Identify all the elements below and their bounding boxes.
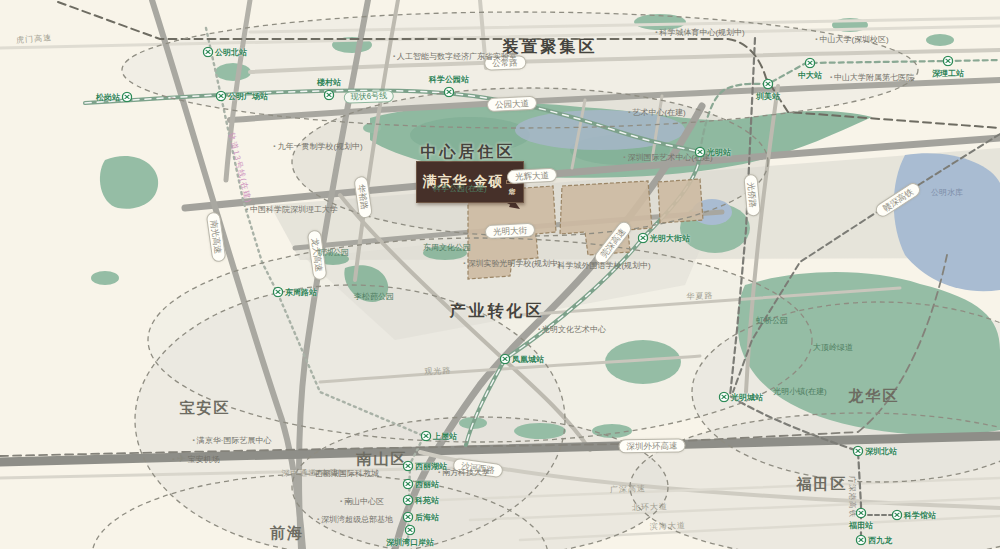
district-label: 南山区: [357, 450, 408, 469]
metro-station-label: 西丽站: [415, 479, 439, 490]
metro-station-icon: [444, 87, 455, 98]
metro-station-label: 光明站: [707, 147, 731, 158]
metro-station-label: 深圳北站: [865, 446, 897, 457]
road-pill: 公园大道: [487, 96, 538, 113]
poi-label: 西丽湖国际科教城: [311, 470, 379, 479]
poi-label: 南山中心区: [340, 498, 384, 507]
location-map: 满京华·金硕 华府 装置聚集区中心居住区产业转化区宝安区南山区龙华区福田区前海公…: [0, 0, 1000, 549]
airport-icon: ✈: [176, 452, 185, 464]
metro-station-label: 光明城站: [731, 392, 763, 403]
road-label: 广深高速: [610, 483, 646, 495]
road-label: 华夏路: [686, 290, 713, 302]
metro-station-label: 圳美站: [756, 91, 780, 102]
metro-station-icon: [403, 479, 414, 490]
poi-label: 九年一贯制学校(规划中): [273, 143, 362, 152]
metro-station-icon: [403, 461, 414, 472]
district-label: 宝安区: [180, 399, 231, 418]
metro-station-label: 科学馆站: [904, 510, 936, 521]
metro-station-label: 深理工站: [932, 68, 964, 79]
metro-station-label: 西丽湖站: [415, 461, 447, 472]
road-pill: 深圳外环高速: [618, 438, 685, 453]
metro-station-icon: [324, 90, 335, 101]
district-label: 前海: [270, 524, 304, 543]
metro-station-label: 松岗站: [96, 92, 120, 103]
road-pill: 光辉大道: [507, 168, 558, 185]
park-label: 虹桥公园: [756, 315, 788, 326]
poi-label: 满京华·国际艺展中心: [193, 437, 272, 446]
poi-label: ✈宝安机场: [172, 452, 219, 465]
metro-station-label: 东周路站: [285, 287, 317, 298]
park-label: 新湖公园: [317, 247, 349, 258]
metro-station-icon: [856, 508, 867, 519]
metro-station-label: 凤凰城站: [512, 354, 544, 365]
metro-station-icon: [403, 495, 414, 506]
zone-label: 产业转化区: [450, 301, 545, 322]
road-label: 滨海大道: [650, 520, 686, 532]
district-label: 龙华区: [849, 387, 900, 406]
poi-label: 光明文化艺术中心: [538, 326, 606, 335]
metro-station-label: 公明北站: [215, 47, 247, 58]
park-label: 李松蓢公园: [354, 291, 394, 302]
metro-station-icon: [943, 56, 954, 67]
metro-station-icon: [853, 446, 864, 457]
metro-station-icon: [856, 535, 867, 546]
poi-label: 深圳湾超级总部基地: [317, 516, 393, 525]
metro-station-label: 深圳湾口岸站: [386, 537, 434, 548]
poi-label: 中山大学(深圳校区): [815, 36, 888, 45]
poi-label: 人工智能与数字经济广东省实验室: [393, 53, 517, 62]
metro-line-badge: 现状6号线: [344, 90, 395, 104]
park-label: 大顶岭绿道: [813, 342, 853, 353]
park-label: 光明小镇(在建): [773, 386, 826, 397]
metro-station-icon: [719, 392, 730, 403]
poi-label: 科学城外国语学校(规划中): [553, 262, 650, 271]
poi-label: 科学城体育中心(规划中): [655, 29, 744, 38]
park-label: 科学公园(在建): [433, 183, 486, 194]
metro-station-label: 科学公园站: [429, 74, 469, 85]
metro-station-label: 后海站: [415, 512, 439, 523]
metro-station-label: 福田站: [849, 520, 873, 531]
park-label: 东周文化公园: [423, 242, 471, 253]
metro-station-label: 科苑站: [415, 495, 439, 506]
metro-station-icon: [805, 58, 816, 69]
metro-station-label: 楼村站: [317, 77, 341, 88]
metro-station-icon: [500, 354, 511, 365]
metro-station-icon: [421, 431, 432, 442]
metro-station-label: 上屋站: [433, 431, 457, 442]
poi-label: 中山大学附属第七医院: [830, 74, 914, 83]
metro-station-label: 公明广场站: [228, 91, 268, 102]
metro-station-icon: [405, 525, 416, 536]
poi-label: 艺术中心(在建): [628, 109, 685, 118]
metro-station-icon: [695, 147, 706, 158]
metro-station-label: 光明大街站: [650, 233, 690, 244]
district-label: 福田区: [797, 475, 848, 494]
poi-label: 中国科学院深圳理工大学: [246, 206, 338, 215]
metro-station-icon: [892, 510, 903, 521]
metro-station-label: 西九龙: [868, 535, 892, 546]
road-label: 观光路: [424, 365, 451, 377]
metro-station-icon: [122, 92, 133, 103]
metro-station-icon: [638, 233, 649, 244]
metro-station-label: 中大站: [798, 70, 822, 81]
water-label: 公明水库: [931, 187, 963, 198]
poi-label: 深圳实验光明学校(规划中): [463, 260, 560, 269]
metro-station-icon: [763, 79, 774, 90]
metro-station-icon: [403, 512, 414, 523]
metro-station-icon: [216, 91, 227, 102]
metro-station-icon: [203, 47, 214, 58]
road-pill: 光明大街: [485, 223, 536, 240]
metro-station-icon: [273, 287, 284, 298]
zone-label: 中心居住区: [421, 142, 516, 163]
road-label: 北环大道: [632, 501, 668, 513]
